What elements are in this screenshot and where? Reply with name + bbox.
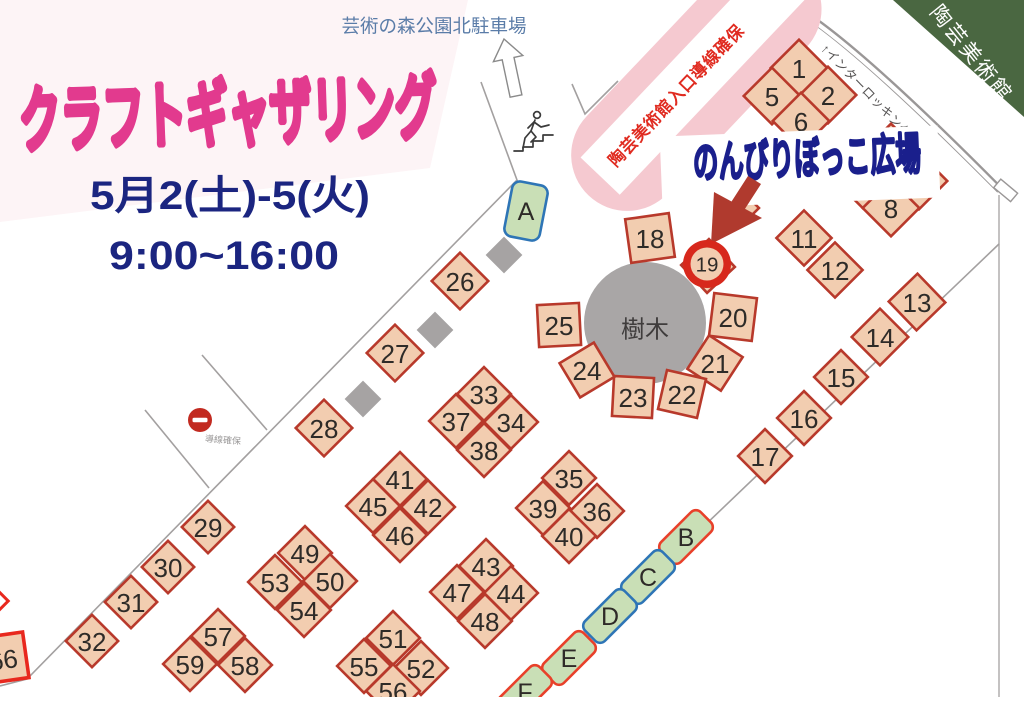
svg-text:47: 47 (443, 578, 472, 608)
svg-text:17: 17 (751, 442, 780, 472)
svg-text:31: 31 (117, 588, 146, 618)
svg-text:40: 40 (555, 522, 584, 552)
svg-text:5: 5 (765, 82, 779, 112)
svg-text:37: 37 (442, 407, 471, 437)
svg-text:14: 14 (866, 323, 895, 353)
svg-text:D: D (601, 603, 619, 631)
svg-text:19: 19 (696, 254, 719, 277)
svg-text:26: 26 (446, 267, 475, 297)
svg-text:57: 57 (204, 622, 233, 652)
svg-text:28: 28 (310, 414, 339, 444)
svg-text:25: 25 (545, 311, 574, 341)
svg-text:20: 20 (719, 303, 748, 333)
svg-text:48: 48 (471, 607, 500, 637)
svg-text:芸術の森公園北駐車場: 芸術の森公園北駐車場 (341, 16, 526, 37)
svg-text:49: 49 (291, 539, 320, 569)
svg-text:F: F (517, 679, 532, 697)
svg-text:1: 1 (792, 54, 806, 84)
svg-text:56: 56 (379, 677, 408, 697)
svg-text:21: 21 (701, 349, 730, 379)
svg-text:32: 32 (78, 627, 107, 657)
svg-text:52: 52 (407, 654, 436, 684)
svg-text:30: 30 (154, 553, 183, 583)
svg-text:のんびりぼっこ広場: のんびりぼっこ広場 (692, 130, 922, 188)
svg-text:13: 13 (903, 288, 932, 318)
svg-text:29: 29 (194, 513, 223, 543)
svg-text:クラフトギャザリング: クラフトギャザリング (18, 68, 439, 163)
svg-text:38: 38 (470, 436, 499, 466)
svg-text:36: 36 (583, 497, 612, 527)
svg-text:C: C (639, 564, 657, 592)
svg-text:35: 35 (555, 464, 584, 494)
svg-text:5月2(土)-5(火): 5月2(土)-5(火) (90, 174, 370, 218)
svg-text:A: A (518, 198, 535, 226)
svg-text:44: 44 (497, 579, 526, 609)
svg-text:53: 53 (261, 568, 290, 598)
svg-text:58: 58 (231, 651, 260, 681)
svg-text:34: 34 (497, 408, 526, 438)
svg-text:22: 22 (668, 380, 697, 410)
svg-text:54: 54 (290, 596, 319, 626)
svg-text:50: 50 (316, 567, 345, 597)
svg-text:51: 51 (379, 624, 408, 654)
svg-text:B: B (678, 524, 695, 552)
svg-text:E: E (561, 645, 578, 673)
svg-text:18: 18 (636, 224, 665, 254)
svg-text:15: 15 (827, 363, 856, 393)
svg-text:55: 55 (350, 652, 379, 682)
svg-text:23: 23 (619, 383, 648, 413)
svg-text:24: 24 (573, 356, 602, 386)
svg-text:33: 33 (470, 380, 499, 410)
svg-text:59: 59 (176, 650, 205, 680)
svg-text:9:00~16:00: 9:00~16:00 (109, 234, 339, 278)
svg-text:2: 2 (821, 81, 835, 111)
svg-text:12: 12 (821, 256, 850, 286)
svg-text:43: 43 (472, 552, 501, 582)
svg-text:樹木: 樹木 (621, 317, 669, 344)
svg-text:16: 16 (790, 404, 819, 434)
svg-text:46: 46 (386, 521, 415, 551)
svg-text:42: 42 (414, 493, 443, 523)
svg-text:27: 27 (381, 339, 410, 369)
svg-text:11: 11 (791, 224, 818, 254)
svg-text:39: 39 (529, 494, 558, 524)
svg-text:45: 45 (359, 492, 388, 522)
svg-text:41: 41 (386, 465, 415, 495)
